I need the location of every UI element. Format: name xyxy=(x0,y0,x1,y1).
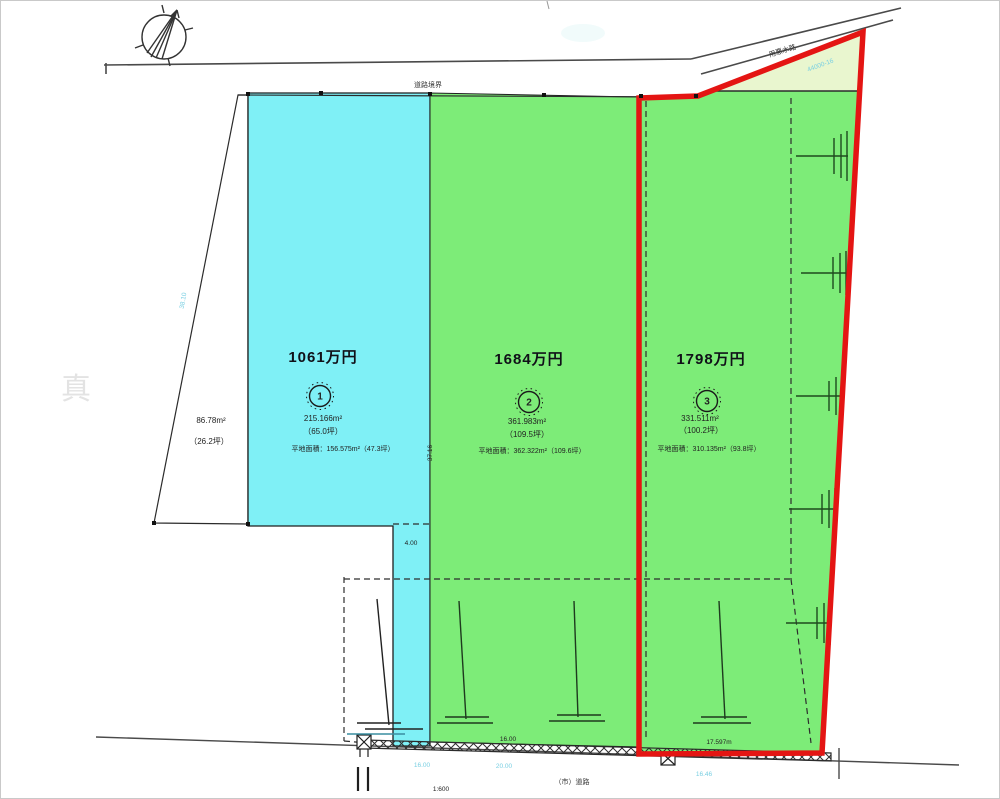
boundary-marker-box-left xyxy=(357,735,371,757)
dim-road-1: 16.00 xyxy=(414,762,431,769)
lot1-flat-area: 平地面積：156.575m²（47.3坪） xyxy=(291,444,394,453)
north-arrow-icon xyxy=(135,5,193,66)
lot2-number: 2 xyxy=(526,398,532,409)
dim-lot2-frontage: 16.00 xyxy=(500,736,517,743)
parcel-west-shape xyxy=(154,95,248,524)
lot1-price: 1061万円 xyxy=(288,349,357,366)
west-area: 86.78m² xyxy=(196,416,226,425)
scan-smudge xyxy=(561,24,605,42)
lot2-area: 361.983m² xyxy=(508,417,547,426)
lot1-area: 215.166m² xyxy=(304,414,343,423)
lot3-price: 1798万円 xyxy=(676,351,745,368)
lot3-number: 3 xyxy=(704,397,710,408)
lot1-tsubo: （65.0坪） xyxy=(303,427,343,436)
dim-road-3: 16.46 xyxy=(696,771,713,778)
plan-canvas: 真 道路境界 用悪水路 （市）道路 86.78m² （26.2坪） 1061万円… xyxy=(1,1,999,798)
dim-lot3-frontage: 17.597m xyxy=(706,739,731,746)
dim-road-2: 20.00 xyxy=(496,763,513,770)
lot2-tsubo: （109.5坪） xyxy=(505,430,549,439)
section-mark xyxy=(358,767,368,791)
lot2-flat-area: 平地面積：362.322m²（109.6坪） xyxy=(479,446,586,455)
watermark-text: 真 xyxy=(61,373,91,406)
lot3-tsubo: （100.2坪） xyxy=(679,426,723,435)
scale-note: 1:600 xyxy=(433,786,450,793)
scan-mark xyxy=(547,1,549,9)
dim-boundary-length: 37.16 xyxy=(427,444,434,461)
lot3-area: 331.511m² xyxy=(681,414,719,423)
dim-pole-width: 4.00 xyxy=(405,540,418,547)
west-tsubo: （26.2坪） xyxy=(189,437,229,446)
dim-west-edge: 38.10 xyxy=(179,292,189,310)
lot1-number: 1 xyxy=(317,392,323,403)
lot3-flat-area: 平地面積：310.135m²（93.8坪） xyxy=(657,444,760,453)
site-plan-drawing: 真 道路境界 用悪水路 （市）道路 86.78m² （26.2坪） 1061万円… xyxy=(0,0,1000,799)
bottom-road-label: （市）道路 xyxy=(555,777,590,786)
lot2-price: 1684万円 xyxy=(494,351,563,368)
top-road-label: 道路境界 xyxy=(414,80,442,89)
